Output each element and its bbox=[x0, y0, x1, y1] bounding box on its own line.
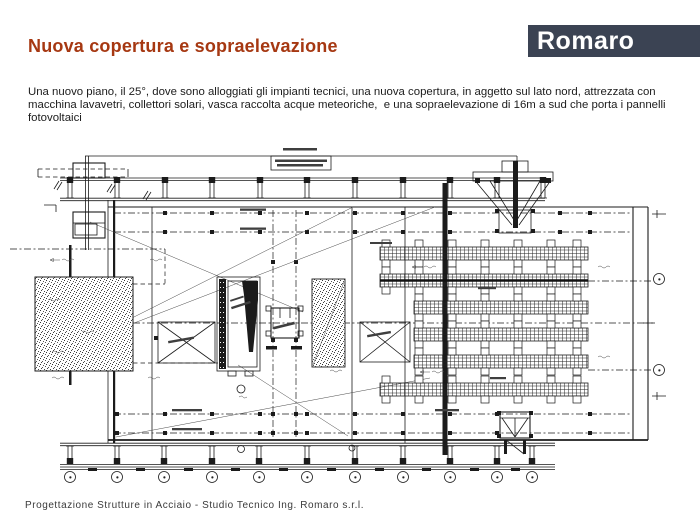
concrete-patch-center bbox=[312, 279, 345, 367]
roof-plan-drawing bbox=[0, 140, 700, 500]
pv-panel-rows bbox=[380, 240, 588, 403]
machine-box bbox=[266, 306, 303, 350]
footer-text: Progettazione Strutture in Acciaio - Stu… bbox=[25, 500, 364, 511]
page-title: Nuova copertura e sopraelevazione bbox=[28, 36, 338, 57]
xbox-left bbox=[154, 322, 215, 363]
concrete-patch-left bbox=[35, 277, 133, 371]
bottom-machine-box bbox=[497, 411, 533, 454]
bottom-truss bbox=[60, 443, 555, 471]
top-dimension-line bbox=[85, 148, 517, 250]
body-paragraph: Una nuovo piano, il 25°, dove sono allog… bbox=[28, 86, 684, 126]
romaro-logo-text: Romaro bbox=[528, 29, 634, 54]
grid-bubbles bbox=[65, 472, 538, 483]
right-margin-marks bbox=[643, 210, 666, 400]
slide: Nuova copertura e sopraelevazione Romaro… bbox=[0, 0, 700, 525]
stair-core bbox=[217, 277, 260, 398]
xbox-right bbox=[360, 322, 410, 362]
romaro-logo: Romaro bbox=[528, 25, 700, 57]
